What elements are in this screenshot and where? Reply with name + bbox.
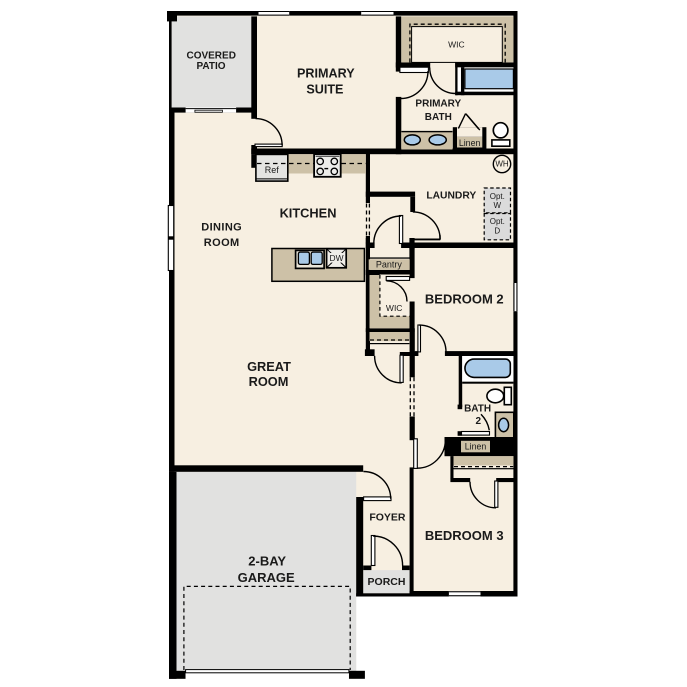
svg-text:D: D bbox=[494, 227, 500, 236]
svg-text:COVERED: COVERED bbox=[186, 50, 235, 61]
svg-text:BATH: BATH bbox=[425, 112, 452, 123]
svg-text:GARAGE: GARAGE bbox=[238, 570, 295, 585]
svg-text:PRIMARY: PRIMARY bbox=[415, 99, 461, 110]
svg-text:BATH: BATH bbox=[464, 404, 491, 415]
svg-text:2-BAY: 2-BAY bbox=[248, 553, 286, 568]
svg-text:PRIMARY: PRIMARY bbox=[297, 67, 355, 81]
svg-text:Pantry: Pantry bbox=[376, 260, 403, 270]
svg-text:LAUNDRY: LAUNDRY bbox=[426, 191, 476, 202]
svg-text:SUITE: SUITE bbox=[306, 83, 343, 97]
svg-text:PATIO: PATIO bbox=[196, 61, 225, 72]
svg-text:Opt.: Opt. bbox=[490, 192, 505, 201]
svg-text:KITCHEN: KITCHEN bbox=[280, 206, 337, 221]
svg-text:Linen: Linen bbox=[459, 138, 481, 148]
svg-text:WIC: WIC bbox=[386, 303, 403, 313]
svg-text:2: 2 bbox=[476, 416, 482, 427]
svg-text:DW: DW bbox=[330, 253, 344, 263]
svg-text:ROOM: ROOM bbox=[204, 237, 240, 249]
svg-text:FOYER: FOYER bbox=[369, 512, 406, 524]
svg-text:DINING: DINING bbox=[201, 221, 242, 233]
svg-text:WH: WH bbox=[495, 160, 509, 169]
svg-text:Ref: Ref bbox=[265, 165, 280, 175]
svg-text:WIC: WIC bbox=[448, 40, 465, 50]
svg-text:GREAT: GREAT bbox=[247, 359, 291, 374]
svg-text:Linen: Linen bbox=[465, 442, 487, 452]
svg-text:Opt.: Opt. bbox=[490, 217, 505, 226]
svg-text:BEDROOM 3: BEDROOM 3 bbox=[425, 528, 504, 543]
svg-text:BEDROOM 2: BEDROOM 2 bbox=[425, 292, 504, 307]
svg-text:W: W bbox=[494, 201, 502, 210]
svg-text:PORCH: PORCH bbox=[368, 576, 406, 588]
svg-text:ROOM: ROOM bbox=[249, 374, 289, 389]
